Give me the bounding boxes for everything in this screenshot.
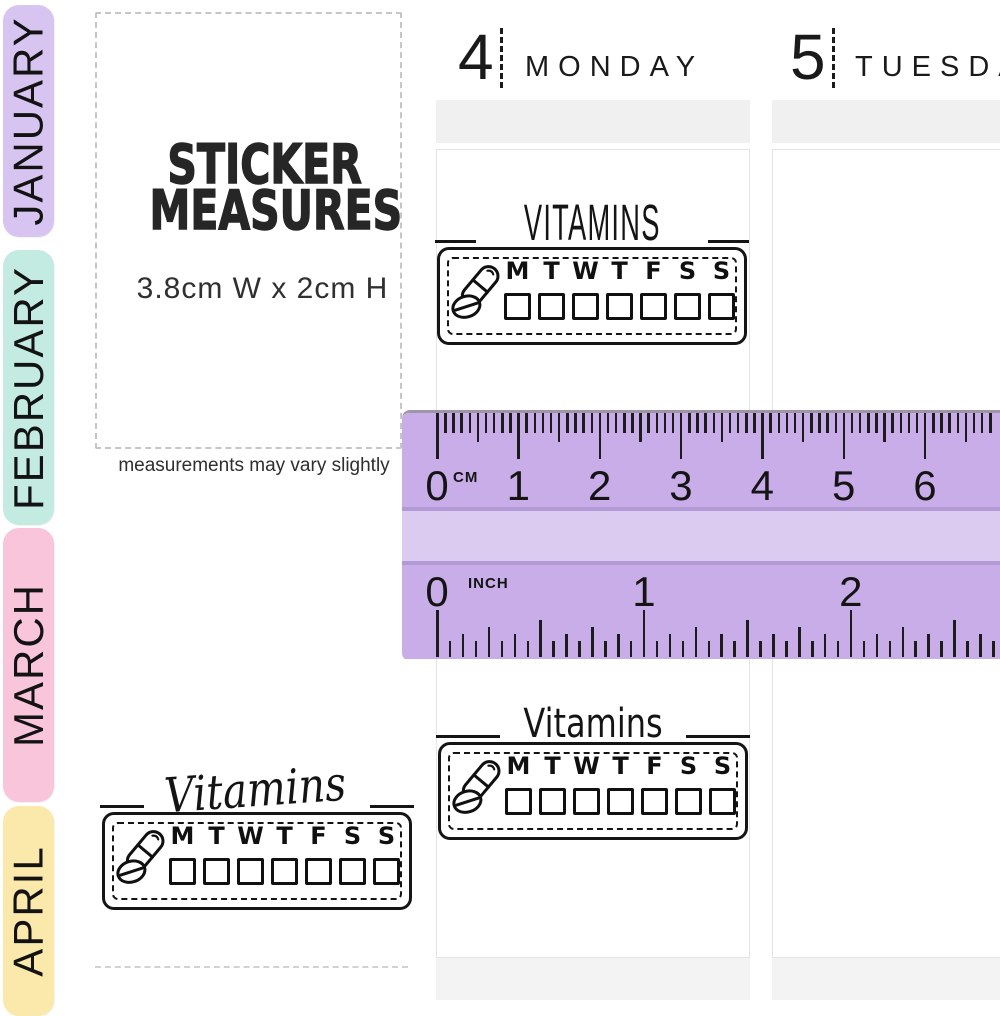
ruler-tick — [713, 413, 716, 433]
day-cell: S — [709, 753, 736, 815]
ruler-tick — [992, 641, 995, 657]
ruler-tick — [837, 641, 840, 657]
day-cell: T — [271, 823, 298, 885]
ruler-tick — [908, 413, 911, 433]
ruler-tick — [733, 641, 736, 657]
day-cell: F — [640, 258, 667, 320]
ruler-tick — [599, 413, 602, 459]
day-name: TUESDAY — [855, 51, 1000, 84]
column-footer-bar — [772, 958, 1000, 1000]
ruler-tick — [688, 413, 691, 433]
ruler-tick — [867, 413, 870, 433]
title-flank-line — [100, 805, 144, 808]
pill-capsule-icon — [115, 825, 165, 889]
day-letter: T — [544, 753, 560, 779]
ruler-tick — [966, 641, 969, 657]
ruler-tick — [444, 413, 447, 433]
ruler-tick — [851, 413, 854, 433]
ruler-tick — [785, 641, 788, 657]
day-checkbox — [708, 293, 735, 320]
tab-april-label: APRIL — [5, 845, 53, 976]
ruler-tick — [639, 413, 642, 442]
ruler-cm-scale: 0123456 CM — [402, 413, 1000, 507]
day-checkbox — [505, 788, 532, 815]
ruler-tick — [843, 413, 846, 459]
ruler-tick — [981, 413, 984, 433]
vitamins-sticker-script: Vitamins MTWTFSS — [102, 812, 412, 910]
sticker-title-row: VITAMINS — [435, 207, 749, 247]
ruler-tick — [477, 413, 480, 442]
ruler-tick — [932, 413, 935, 433]
ruler-tick — [927, 634, 930, 657]
ruler-tick — [604, 641, 607, 657]
day-letter: T — [276, 823, 292, 849]
ruler-tick — [940, 413, 943, 433]
cm-number: 3 — [669, 465, 692, 507]
cm-unit-label: CM — [453, 469, 478, 486]
ruler-tick — [989, 413, 992, 433]
cm-number: 6 — [913, 465, 936, 507]
ruler-tick — [745, 413, 748, 433]
day-letter: T — [543, 258, 559, 284]
ruler-tick — [953, 620, 956, 657]
day-letter: S — [680, 753, 697, 779]
ruler-tick — [720, 634, 723, 657]
ruler-tick — [607, 413, 610, 433]
day-checkbox — [339, 858, 366, 885]
tab-march-label: MARCH — [5, 583, 53, 747]
day-letter: M — [171, 823, 195, 849]
ruler-tick — [485, 413, 488, 433]
ruler-tick — [811, 641, 814, 657]
ruler-tick — [558, 413, 561, 442]
day-checkbox — [674, 293, 701, 320]
title-flank-line — [370, 805, 414, 808]
ruler-tick — [615, 413, 618, 433]
ruler-tick — [708, 641, 711, 657]
title-flank-line — [686, 735, 750, 738]
inch-number: 0 — [425, 571, 448, 613]
vitamins-sticker-print: Vitamins MTWTFSS — [438, 742, 748, 840]
ruler-tick — [695, 627, 698, 657]
ruler-tick — [514, 634, 517, 657]
ruler-tick — [591, 413, 594, 433]
day-cell: S — [708, 258, 735, 320]
ruler-tick — [863, 641, 866, 657]
ruler-tick — [965, 413, 968, 442]
ruler-tick — [876, 634, 879, 657]
title-flank-line — [435, 240, 476, 243]
ruler-tick — [647, 413, 650, 433]
ruler-tick — [680, 413, 683, 459]
ruler-tick — [669, 634, 672, 657]
day-checkbox — [607, 788, 634, 815]
sticker-body: MTWTFSS — [438, 742, 748, 840]
ruler-middle-band — [402, 511, 1000, 561]
ruler-tick — [436, 610, 439, 657]
day-cell: W — [573, 753, 600, 815]
day-letter: S — [378, 823, 395, 849]
ruler-tick — [729, 413, 732, 433]
ruler-tick — [889, 641, 892, 657]
cm-number: 4 — [751, 465, 774, 507]
ruler-tick — [509, 413, 512, 433]
cm-number: 1 — [507, 465, 530, 507]
cm-number: 2 — [588, 465, 611, 507]
ruler-tick — [574, 413, 577, 433]
ruler-tick — [656, 413, 659, 433]
day-checkbox — [538, 293, 565, 320]
ruler-tick — [746, 620, 749, 657]
day-checkbox — [640, 293, 667, 320]
inch-number: 1 — [632, 571, 655, 613]
day-checkbox — [606, 293, 633, 320]
day-cell: T — [539, 753, 566, 815]
day-checkbox-row: MTWTFSS — [505, 753, 736, 815]
cm-number: 0 — [425, 465, 448, 507]
date-number: 5 — [790, 25, 826, 89]
ruler-tick — [582, 413, 585, 433]
day-cell: M — [505, 753, 532, 815]
ruler-tick — [798, 627, 801, 657]
sticker-title-row: Vitamins — [436, 706, 750, 742]
day-cell: W — [572, 258, 599, 320]
ruler-tick — [534, 413, 537, 433]
day-letter: S — [714, 753, 731, 779]
tab-april: APRIL — [3, 806, 54, 1016]
ruler-tick — [786, 413, 789, 433]
ruler-tick — [488, 627, 491, 657]
ruler-tick — [643, 610, 646, 657]
ruler-tick — [802, 413, 805, 442]
measurements-note: measurements may vary slightly — [95, 455, 413, 477]
day-letter: S — [344, 823, 361, 849]
ruler-tick — [759, 641, 762, 657]
sticker-title: VITAMINS — [524, 201, 661, 247]
day-checkbox — [373, 858, 400, 885]
day-letter: T — [611, 258, 627, 284]
ruler-tick — [761, 413, 764, 459]
ruler-tick — [778, 413, 781, 433]
ruler-tick — [578, 641, 581, 657]
day-letter: W — [237, 823, 263, 849]
ruler-tick — [656, 641, 659, 657]
day-letter: F — [310, 823, 326, 849]
ruler-tick — [772, 634, 775, 657]
day-checkbox — [573, 788, 600, 815]
title-flank-line — [436, 735, 500, 738]
day-cell: F — [641, 753, 668, 815]
cm-number: 5 — [832, 465, 855, 507]
sticker-measures-title-line2: MEASURES — [149, 188, 379, 234]
day-checkbox-row: MTWTFSS — [169, 823, 400, 885]
header-dashed-divider — [832, 28, 835, 88]
day-checkbox — [271, 858, 298, 885]
day-cell: T — [538, 258, 565, 320]
pill-capsule-icon — [451, 755, 501, 819]
ruler-tick — [737, 413, 740, 433]
day-checkbox — [641, 788, 668, 815]
ruler-tick — [835, 413, 838, 433]
ruler-tick — [826, 413, 829, 433]
ruler-tick — [566, 413, 569, 433]
ruler-tick — [859, 413, 862, 433]
pill-capsule-icon — [450, 260, 500, 324]
ruler-tick — [883, 413, 886, 442]
day-letter: S — [679, 258, 696, 284]
ruler-tick — [501, 413, 504, 433]
ruler-tick — [810, 413, 813, 433]
sticker-title: Vitamins — [163, 763, 347, 819]
ruler-tick — [794, 413, 797, 433]
column-top-bar — [772, 100, 1000, 143]
day-cell: S — [674, 258, 701, 320]
ruler-tick — [542, 413, 545, 433]
day-letter: M — [506, 258, 530, 284]
ruler-tick — [436, 413, 439, 459]
title-flank-line — [708, 240, 749, 243]
ruler-tick — [552, 641, 555, 657]
ruler-tick — [469, 413, 472, 433]
ruler-tick — [452, 413, 455, 433]
day-cell: T — [606, 258, 633, 320]
ruler-tick — [565, 634, 568, 657]
measuring-ruler: 0123456 CM INCH 012 — [402, 410, 1000, 661]
day-cell: M — [169, 823, 196, 885]
ruler-tick — [721, 413, 724, 442]
day-letter: T — [208, 823, 224, 849]
day-checkbox — [504, 293, 531, 320]
day-letter: F — [645, 258, 661, 284]
ruler-tick — [475, 641, 478, 657]
ruler-tick — [900, 413, 903, 433]
ruler-tick — [591, 627, 594, 657]
sticker-title-row: Vitamins — [100, 769, 414, 812]
ruler-tick — [623, 413, 626, 433]
ruler-tick — [550, 413, 553, 433]
sticker-body: MTWTFSS — [102, 812, 412, 910]
day-checkbox — [203, 858, 230, 885]
ruler-tick — [682, 641, 685, 657]
day-name: MONDAY — [525, 51, 704, 84]
section-cut-line — [95, 966, 408, 968]
day-letter: S — [713, 258, 730, 284]
day-cell: F — [305, 823, 332, 885]
ruler-tick — [818, 413, 821, 433]
day-checkbox — [169, 858, 196, 885]
ruler-tick — [916, 413, 919, 433]
column-top-bar — [436, 100, 750, 143]
sticker-size-text: 3.8cm W x 2cm H — [97, 272, 414, 306]
day-checkbox-row: MTWTFSS — [504, 258, 735, 320]
ruler-tick — [948, 413, 951, 433]
ruler-tick — [631, 413, 634, 433]
ruler-tick — [617, 634, 620, 657]
ruler-tick — [501, 641, 504, 657]
day-checkbox — [675, 788, 702, 815]
ruler-tick — [460, 413, 463, 433]
tab-february: FEBRUARY — [3, 250, 54, 525]
tab-january: JANUARY — [3, 5, 54, 237]
tab-january-label: JANUARY — [5, 16, 53, 225]
ruler-tick — [664, 413, 667, 433]
ruler-tick — [539, 620, 542, 657]
ruler-tick — [462, 634, 465, 657]
day-cell: M — [504, 258, 531, 320]
ruler-tick — [449, 641, 452, 657]
day-cell: T — [203, 823, 230, 885]
day-letter: M — [507, 753, 531, 779]
ruler-tick — [630, 641, 633, 657]
tab-march: MARCH — [3, 528, 54, 802]
ruler-tick — [957, 413, 960, 433]
ruler-tick — [924, 413, 927, 459]
tab-february-label: FEBRUARY — [5, 266, 53, 510]
ruler-tick — [973, 413, 976, 433]
day-letter: W — [572, 258, 598, 284]
ruler-tick — [704, 413, 707, 433]
day-letter: W — [573, 753, 599, 779]
ruler-tick — [914, 641, 917, 657]
ruler-tick — [824, 634, 827, 657]
day-cell: S — [339, 823, 366, 885]
ruler-tick — [672, 413, 675, 433]
day-checkbox — [237, 858, 264, 885]
day-checkbox — [305, 858, 332, 885]
date-number: 4 — [458, 25, 494, 89]
ruler-tick — [979, 634, 982, 657]
product-image-canvas: { "tabs": [ {"label": "JANUARY", "color"… — [0, 0, 1000, 1000]
ruler-tick — [769, 413, 772, 433]
header-dashed-divider — [500, 28, 503, 88]
ruler-tick — [517, 413, 520, 459]
inch-unit-label: INCH — [468, 575, 509, 592]
column-footer-bar — [436, 958, 750, 1000]
ruler-tick — [696, 413, 699, 433]
ruler-tick — [902, 627, 905, 657]
day-checkbox — [539, 788, 566, 815]
ruler-tick — [493, 413, 496, 433]
day-cell: W — [237, 823, 264, 885]
sticker-body: MTWTFSS — [437, 247, 747, 345]
day-cell: S — [675, 753, 702, 815]
ruler-tick — [891, 413, 894, 433]
vitamins-sticker-caps: VITAMINS MTWTFSS — [437, 247, 747, 345]
ruler-tick — [753, 413, 756, 433]
ruler-tick — [850, 610, 853, 657]
sticker-title: Vitamins — [523, 706, 662, 742]
sticker-measures-box: STICKER MEASURES 3.8cm W x 2cm H — [95, 12, 402, 449]
ruler-tick — [940, 641, 943, 657]
day-cell: T — [607, 753, 634, 815]
ruler-inch-scale: INCH 012 — [402, 565, 1000, 659]
ruler-tick — [875, 413, 878, 433]
day-cell: S — [373, 823, 400, 885]
day-checkbox — [709, 788, 736, 815]
day-letter: F — [646, 753, 662, 779]
inch-number: 2 — [839, 571, 862, 613]
day-letter: T — [612, 753, 628, 779]
sticker-measures-title: STICKER MEASURES — [139, 142, 380, 234]
ruler-tick — [525, 413, 528, 433]
day-checkbox — [572, 293, 599, 320]
ruler-tick — [527, 641, 530, 657]
